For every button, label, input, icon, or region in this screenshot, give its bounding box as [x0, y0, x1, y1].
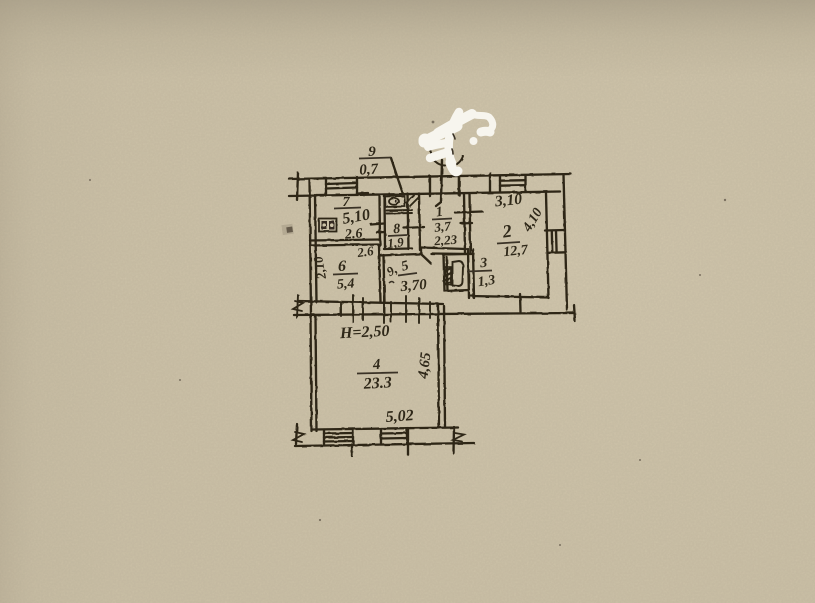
svg-text:6: 6: [338, 258, 346, 275]
svg-text:23.3: 23.3: [362, 374, 392, 392]
svg-text:0,7: 0,7: [359, 161, 379, 178]
svg-text:5,4: 5,4: [337, 276, 356, 292]
svg-text:3: 3: [479, 256, 488, 272]
svg-text:1,9: 1,9: [387, 234, 405, 251]
svg-text:1,3: 1,3: [477, 273, 496, 290]
svg-text:3,70: 3,70: [399, 277, 428, 295]
svg-text:2.6: 2.6: [344, 226, 364, 242]
svg-text:2.6: 2.6: [355, 243, 375, 260]
svg-text:H=2,50: H=2,50: [339, 323, 390, 343]
svg-text:5,02: 5,02: [385, 407, 414, 426]
svg-text:4,65: 4,65: [415, 351, 434, 380]
svg-text:12,7: 12,7: [503, 243, 530, 261]
svg-text:4: 4: [371, 357, 381, 374]
svg-text:2,23: 2,23: [433, 232, 458, 249]
svg-text:3,10: 3,10: [493, 191, 523, 211]
